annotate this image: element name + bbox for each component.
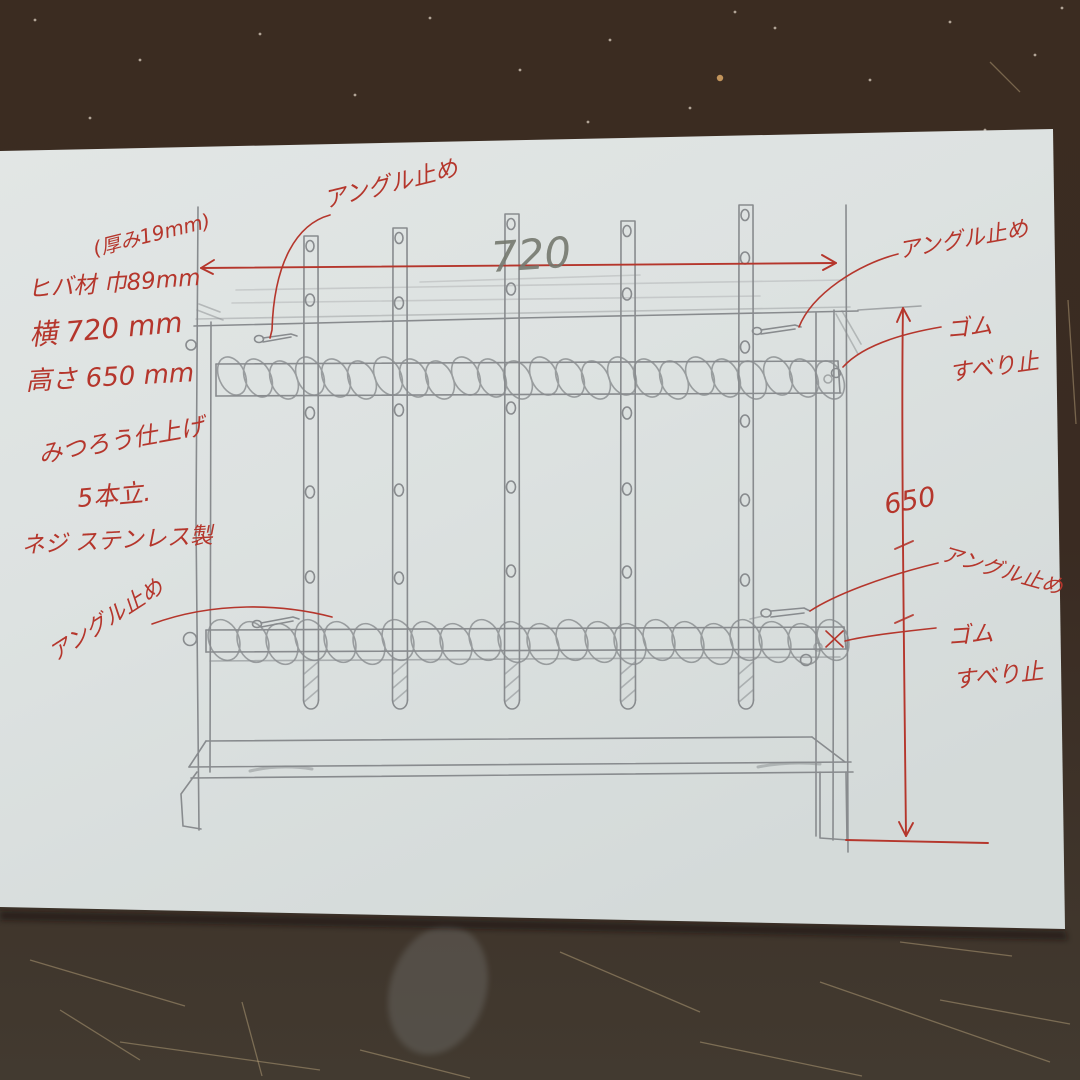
speckle [774,27,777,30]
speckle [429,17,432,20]
speckle [354,94,357,97]
photo-canvas: (厚み19mm) ヒバ材 巾89mm 横 720 mm 高さ 650 mm みつ… [0,0,1080,1080]
speckle [689,107,692,110]
wood-chip [717,75,723,81]
label-rubber-top-1: ゴム [945,313,993,343]
speckle [587,121,590,124]
label-rubber-bottom-1: ゴム [947,621,995,650]
speckle [869,79,872,82]
right-board-mid [833,310,834,840]
speckle [949,21,952,24]
speckle [1061,7,1064,10]
speckle [609,39,612,42]
speckle [734,11,737,14]
speckle [519,69,522,72]
speckle [259,33,262,36]
speckle [89,117,92,120]
dim-720-label: 720 [489,228,572,282]
speckle [34,19,37,22]
speckle [1034,54,1037,57]
speckle [139,59,142,62]
